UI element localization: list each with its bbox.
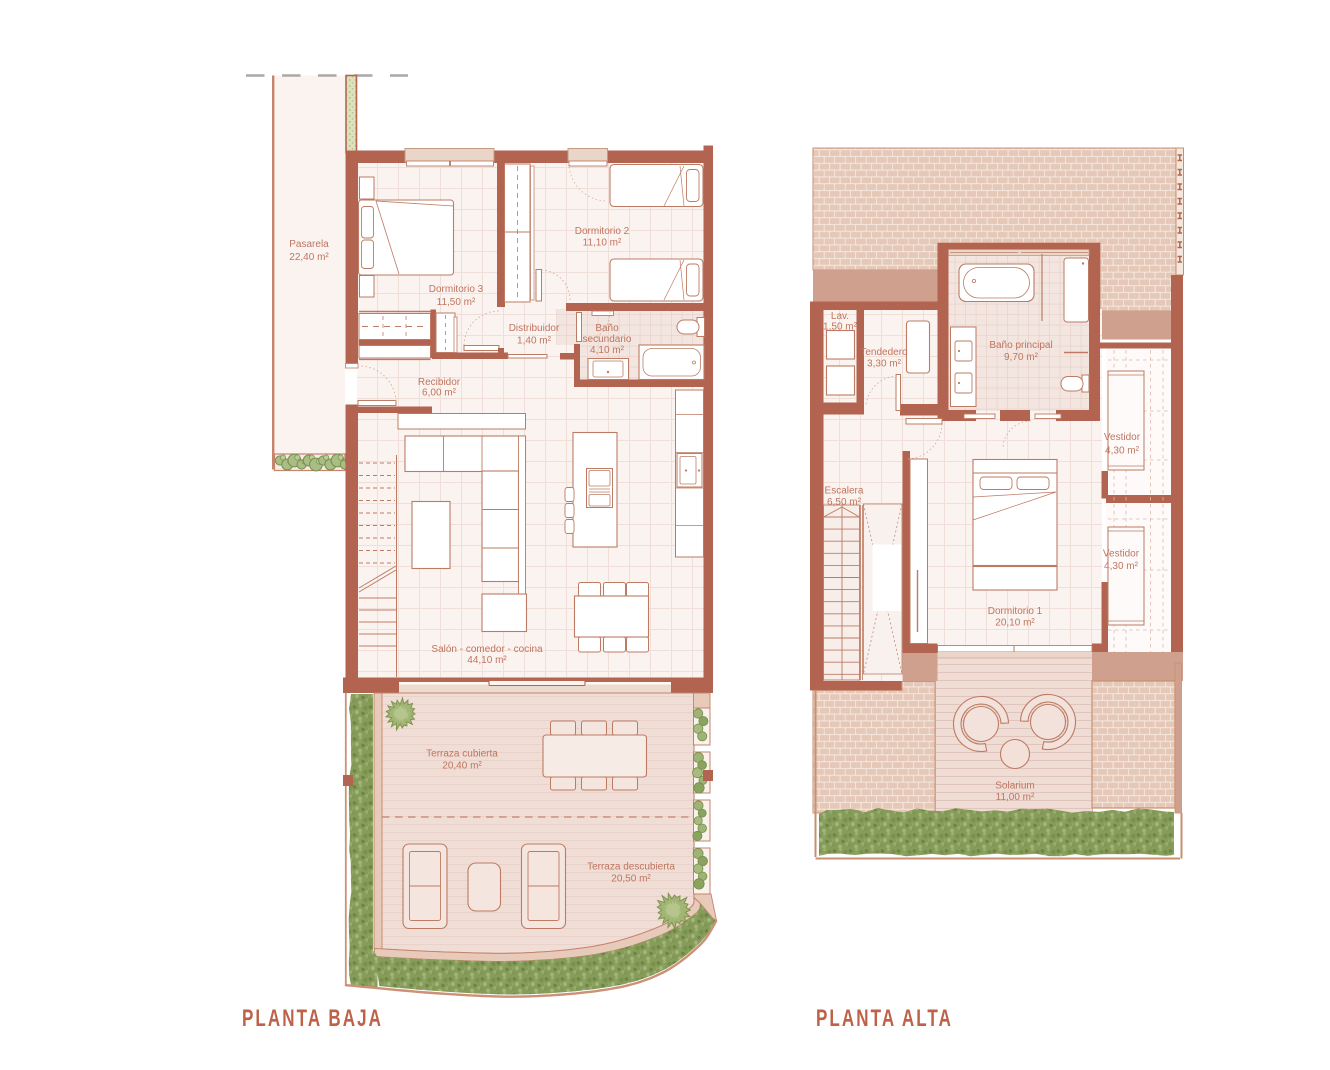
svg-text:secundario: secundario bbox=[583, 334, 632, 345]
svg-text:22,40 m²: 22,40 m² bbox=[289, 252, 329, 263]
svg-text:Salón - comedor - cocina: Salón - comedor - cocina bbox=[431, 644, 543, 655]
svg-text:Dormitorio 1: Dormitorio 1 bbox=[988, 606, 1043, 617]
svg-text:4,10 m²: 4,10 m² bbox=[590, 345, 625, 356]
svg-text:Recibidor: Recibidor bbox=[418, 377, 461, 388]
svg-text:Terraza descubierta: Terraza descubierta bbox=[587, 862, 675, 873]
svg-text:PLANTA BAJA: PLANTA BAJA bbox=[242, 1005, 383, 1032]
svg-text:20,40 m²: 20,40 m² bbox=[442, 761, 482, 772]
svg-text:1,40 m²: 1,40 m² bbox=[517, 336, 552, 347]
svg-text:Dormitorio 3: Dormitorio 3 bbox=[429, 284, 484, 295]
svg-text:Tendedero: Tendedero bbox=[860, 347, 908, 358]
svg-text:Vestidor: Vestidor bbox=[1104, 432, 1141, 443]
svg-text:4,30 m²: 4,30 m² bbox=[1104, 561, 1139, 572]
svg-text:1,50 m²: 1,50 m² bbox=[823, 322, 858, 333]
svg-text:Dormitorio 2: Dormitorio 2 bbox=[575, 226, 630, 237]
svg-text:PLANTA ALTA: PLANTA ALTA bbox=[816, 1005, 953, 1032]
svg-text:20,50 m²: 20,50 m² bbox=[611, 874, 651, 885]
svg-text:44,10 m²: 44,10 m² bbox=[467, 655, 507, 666]
svg-text:Escalera: Escalera bbox=[825, 486, 864, 497]
svg-text:11,00 m²: 11,00 m² bbox=[996, 792, 1035, 803]
svg-text:Terraza cubierta: Terraza cubierta bbox=[426, 749, 498, 760]
svg-text:6,00 m²: 6,00 m² bbox=[422, 388, 457, 399]
svg-text:20,10 m²: 20,10 m² bbox=[995, 618, 1035, 629]
svg-text:Solarium: Solarium bbox=[995, 781, 1034, 792]
svg-text:Baño: Baño bbox=[595, 323, 619, 334]
svg-text:Distribuidor: Distribuidor bbox=[509, 323, 560, 334]
svg-text:11,10 m²: 11,10 m² bbox=[583, 238, 622, 249]
svg-text:6,50 m²: 6,50 m² bbox=[827, 497, 862, 508]
svg-text:Vestidor: Vestidor bbox=[1103, 549, 1140, 560]
svg-text:11,50 m²: 11,50 m² bbox=[437, 297, 476, 308]
svg-text:4,30 m²: 4,30 m² bbox=[1105, 446, 1140, 457]
svg-text:Pasarela: Pasarela bbox=[289, 239, 329, 250]
svg-text:Lav.: Lav. bbox=[831, 311, 849, 322]
svg-text:Baño principal: Baño principal bbox=[989, 340, 1052, 351]
svg-text:3,30 m²: 3,30 m² bbox=[867, 359, 902, 370]
svg-text:9,70 m²: 9,70 m² bbox=[1004, 352, 1039, 363]
